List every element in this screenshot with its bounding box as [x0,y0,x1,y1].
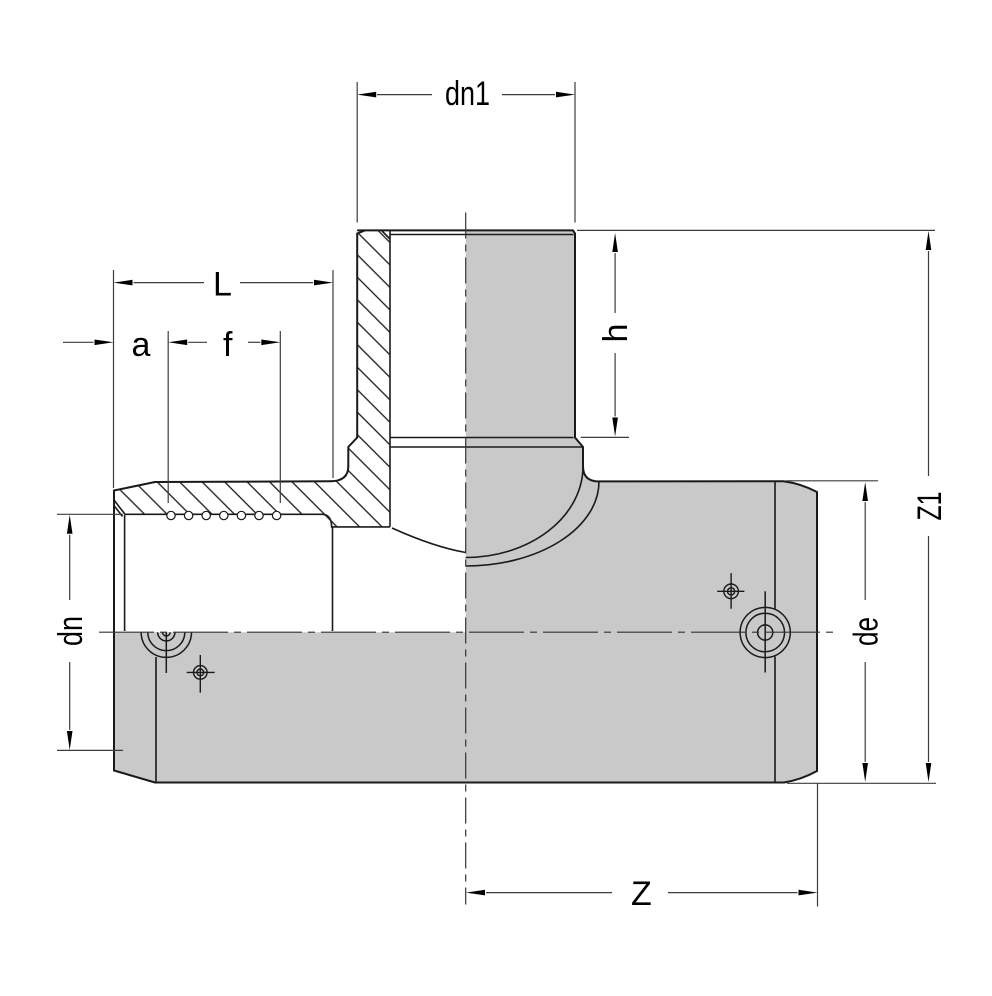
svg-text:de: de [848,617,886,646]
svg-text:dn1: dn1 [445,75,490,113]
svg-text:Z: Z [631,875,652,913]
svg-text:f: f [223,326,233,364]
svg-text:dn: dn [52,616,90,646]
svg-text:Z1: Z1 [911,492,949,521]
svg-text:h: h [597,324,635,343]
svg-text:L: L [213,266,232,304]
svg-text:a: a [132,326,151,364]
